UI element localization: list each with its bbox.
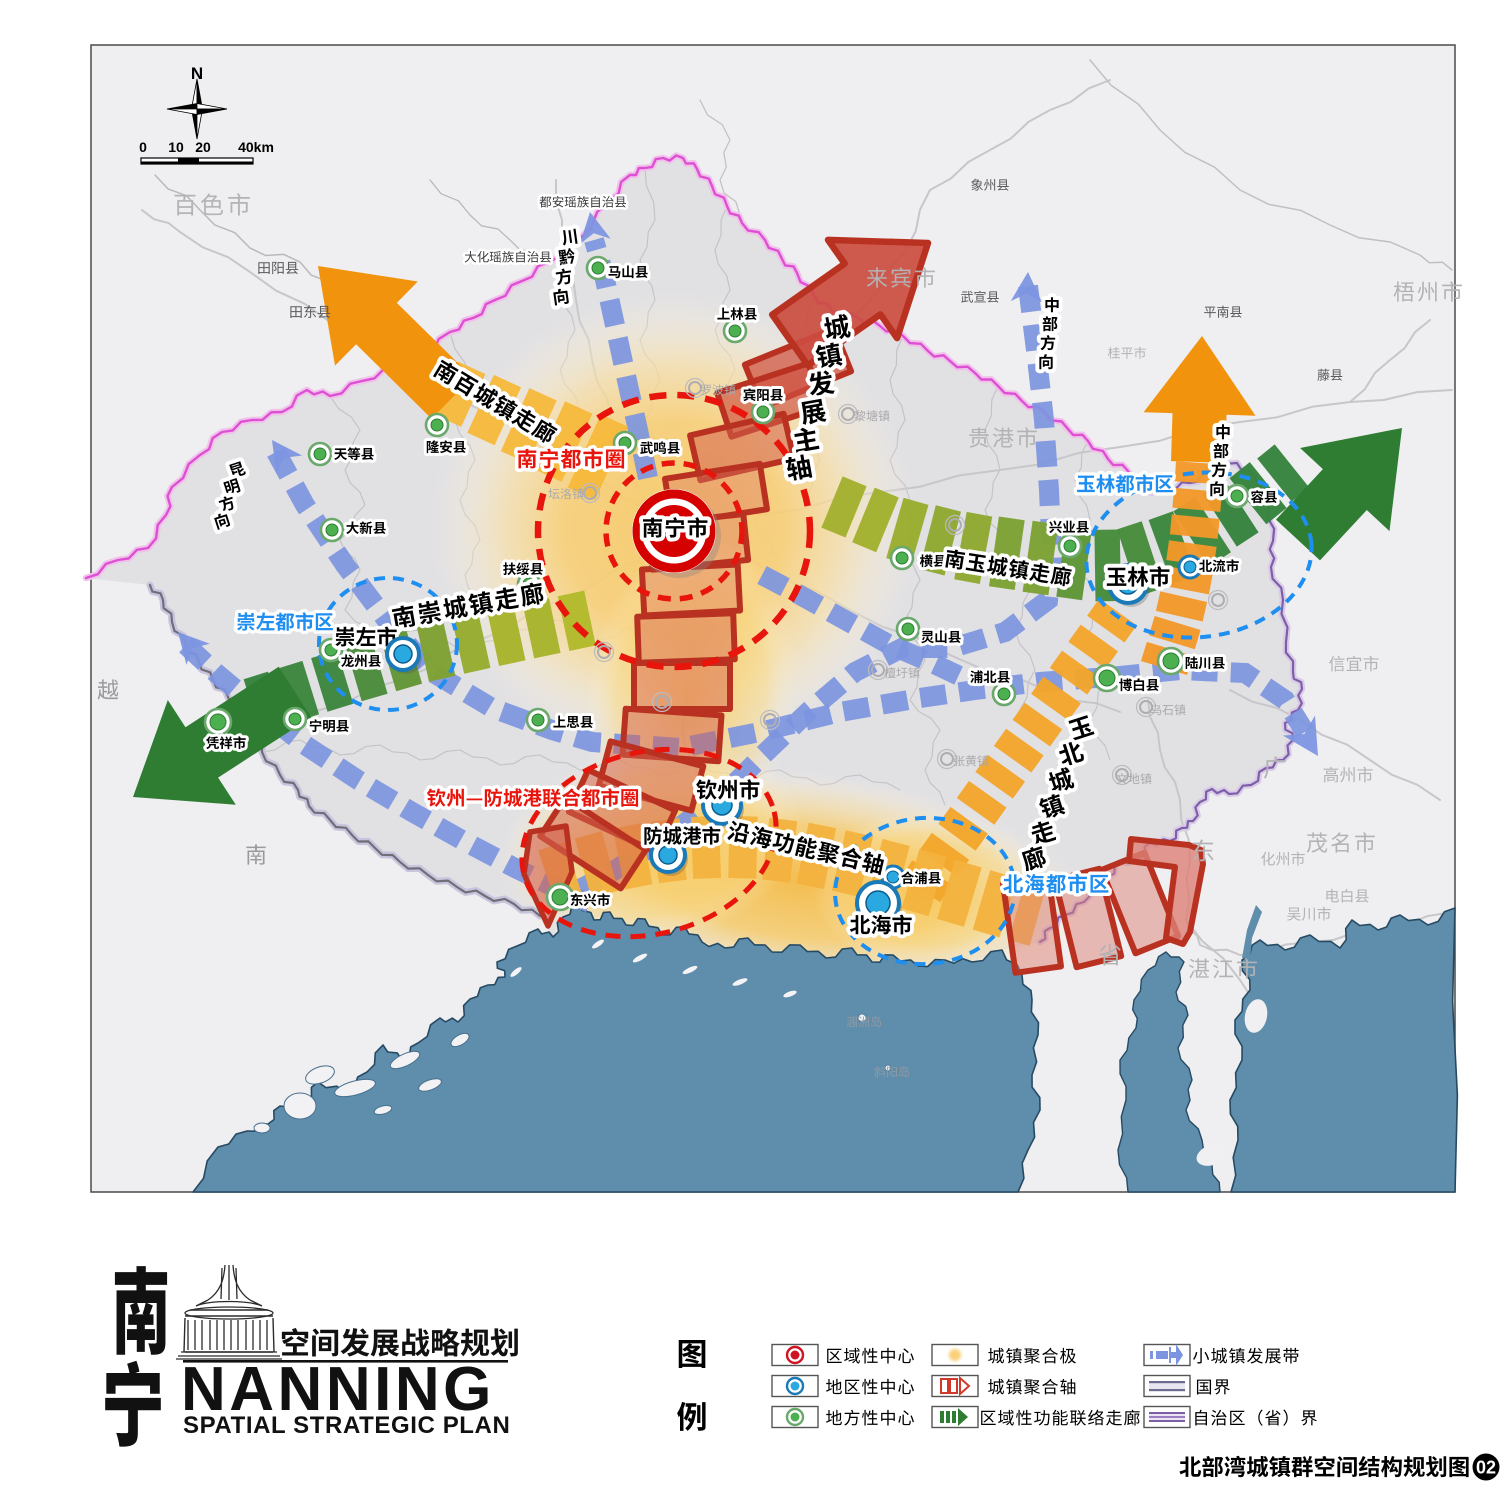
- svg-text:20: 20: [195, 139, 211, 155]
- svg-text:02: 02: [1476, 1458, 1496, 1478]
- svg-text:N: N: [191, 64, 203, 83]
- svg-text:10: 10: [168, 139, 184, 155]
- svg-text:0: 0: [139, 139, 147, 155]
- svg-text:40km: 40km: [238, 139, 274, 155]
- svg-text:SPATIAL STRATEGIC PLAN: SPATIAL STRATEGIC PLAN: [183, 1412, 510, 1439]
